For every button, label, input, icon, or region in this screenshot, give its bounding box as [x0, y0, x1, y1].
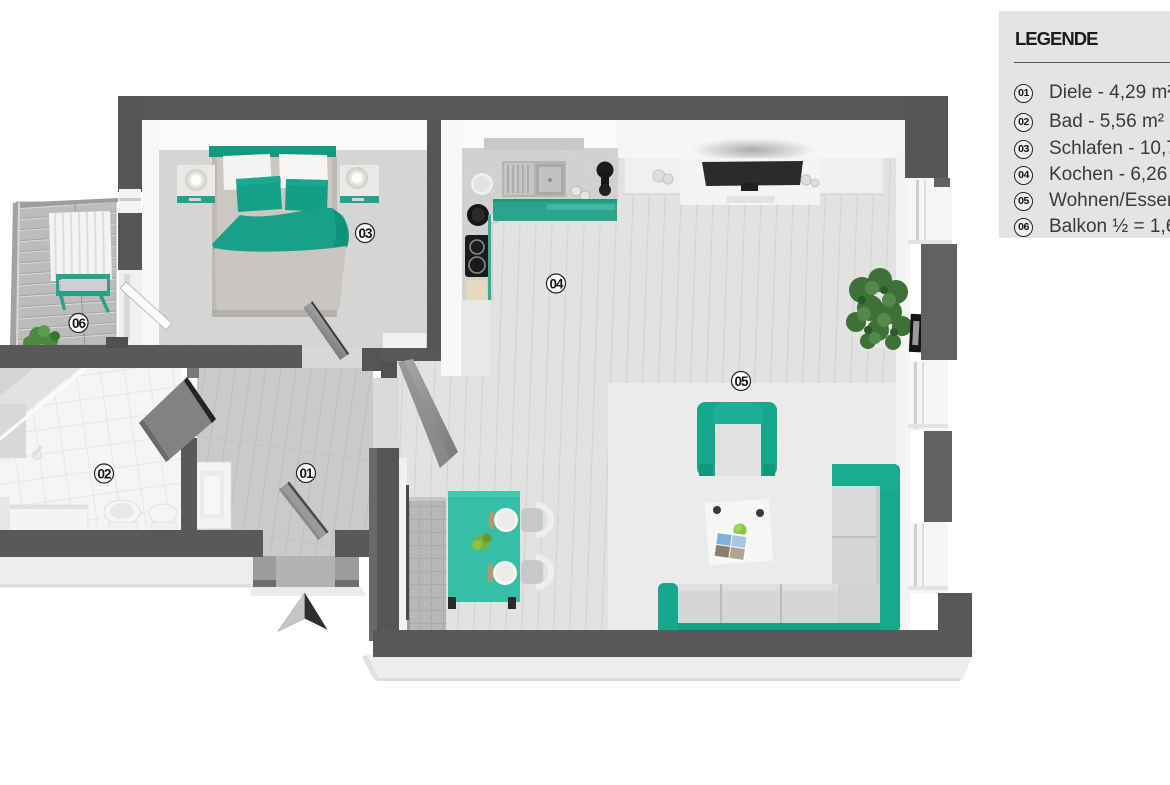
svg-text:04: 04	[549, 277, 564, 292]
svg-text:02: 02	[97, 467, 111, 482]
svg-text:06: 06	[72, 316, 87, 331]
svg-text:03: 03	[358, 226, 373, 241]
svg-text:01: 01	[299, 466, 314, 481]
svg-text:05: 05	[734, 374, 749, 389]
